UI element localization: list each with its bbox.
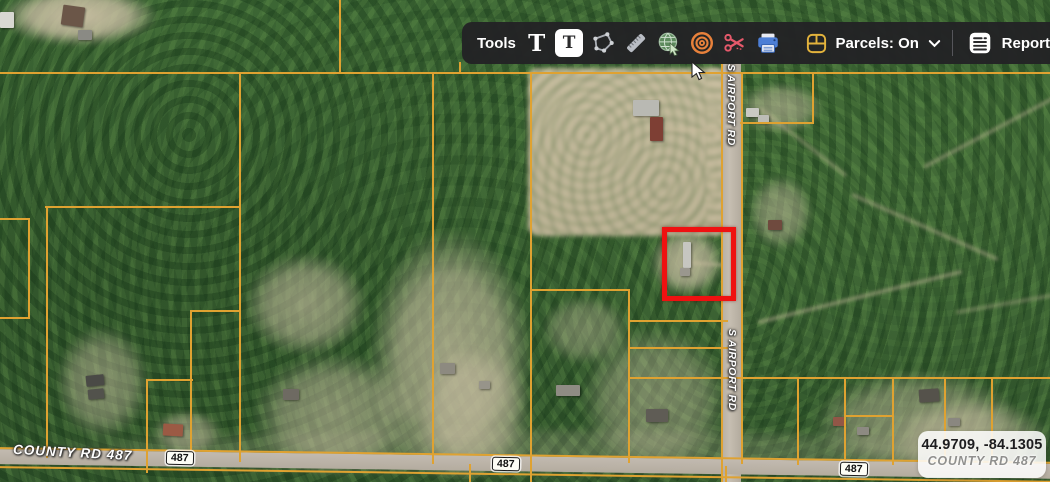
trail: [923, 95, 1050, 169]
text-box-tool-icon: T: [555, 29, 583, 57]
satellite-map[interactable]: S AIRPORT RD S AIRPORT RD COUNTY RD 487 …: [0, 0, 1050, 482]
parcel-line: [147, 379, 193, 381]
cut-tool-button[interactable]: [722, 26, 748, 60]
print-tool-button[interactable]: [755, 26, 781, 60]
text-tool-button[interactable]: T: [525, 26, 548, 60]
building: [556, 385, 580, 396]
building: [633, 100, 659, 116]
parcel-line: [146, 379, 148, 473]
selected-parcel-highlight[interactable]: [662, 227, 736, 301]
toolbar-divider: [952, 30, 953, 56]
bullseye-icon: [689, 30, 715, 56]
coordinates-road-label: COUNTY RD 487: [918, 454, 1046, 468]
parcel-line: [28, 218, 30, 319]
route-shield-487-center: 487: [492, 457, 520, 472]
parcel-line: [845, 415, 894, 417]
toolbar-title: Tools: [477, 35, 516, 52]
parcel-line: [628, 289, 630, 463]
parcel-line: [725, 466, 727, 482]
printer-icon: [755, 30, 781, 56]
report-button[interactable]: Report: [967, 30, 1050, 56]
parcel-line: [629, 347, 728, 349]
parcel-line: [797, 377, 799, 465]
building: [919, 388, 940, 402]
trail: [851, 193, 999, 262]
radius-tool-button[interactable]: [689, 26, 715, 60]
parcel-line: [892, 377, 894, 465]
parcels-toggle[interactable]: Parcels: On: [805, 32, 942, 55]
coordinates-display: 44.9709, -84.1305 COUNTY RD 487: [918, 431, 1046, 478]
building: [78, 30, 92, 40]
polygon-draw-tool-button[interactable]: [590, 26, 616, 60]
building: [88, 388, 105, 400]
parcel-line: [339, 0, 341, 73]
parcel-line: [0, 317, 30, 319]
parcel-line: [530, 72, 532, 470]
parcel-line: [812, 72, 814, 124]
parcel-line: [629, 377, 1050, 379]
clearing: [243, 252, 368, 357]
text-tool-icon: T: [528, 32, 545, 55]
parcel-line: [629, 320, 728, 322]
parcel-line: [740, 122, 814, 124]
building: [440, 363, 455, 374]
building: [768, 220, 782, 230]
parcel-line: [531, 289, 630, 291]
ruler-icon: [623, 30, 649, 56]
road-label-airport-north: S AIRPORT RD: [725, 64, 737, 146]
polygon-draw-icon: [590, 30, 616, 56]
parcel-line: [459, 62, 461, 74]
cursor-coordinates: 44.9709, -84.1305: [918, 437, 1046, 453]
text-box-tool-button[interactable]: T: [555, 26, 583, 60]
parcel-line: [432, 72, 434, 464]
building: [479, 381, 490, 389]
trail: [758, 270, 963, 325]
toolbar: Tools T T: [462, 22, 1050, 64]
globe-cursor-icon: [656, 30, 682, 56]
parcel-line: [844, 377, 846, 465]
report-icon: [967, 30, 993, 56]
parcel-line: [741, 72, 743, 464]
scissors-icon: [722, 30, 748, 56]
web-globe-tool-button[interactable]: [656, 26, 682, 60]
building: [61, 5, 86, 28]
map-viewport: S AIRPORT RD S AIRPORT RD COUNTY RD 487 …: [0, 0, 1050, 482]
measure-tool-button[interactable]: [623, 26, 649, 60]
route-shield-487-west: 487: [166, 451, 194, 466]
report-button-label: Report: [1002, 35, 1050, 52]
building: [283, 389, 299, 400]
parcel-line: [45, 206, 241, 208]
building: [0, 12, 14, 28]
parcel-line: [239, 72, 241, 462]
clearing: [748, 175, 813, 250]
building: [948, 418, 960, 426]
parcel-line: [190, 310, 192, 460]
parcels-icon: [805, 32, 828, 55]
road-label-airport-south: S AIRPORT RD: [726, 329, 738, 411]
parcel-line: [0, 218, 30, 220]
building: [85, 374, 104, 387]
trail: [956, 290, 1050, 315]
building: [646, 409, 668, 422]
mouse-cursor: [691, 61, 706, 82]
clearing: [528, 68, 724, 236]
building: [857, 427, 869, 435]
chevron-down-icon: [927, 36, 942, 51]
route-shield-487-east: 487: [840, 462, 868, 477]
building: [650, 117, 663, 141]
parcel-line: [0, 72, 1050, 74]
parcels-toggle-label: Parcels: On: [836, 35, 919, 52]
parcel-line: [191, 310, 241, 312]
parcel-line: [46, 206, 48, 458]
building: [163, 423, 184, 436]
